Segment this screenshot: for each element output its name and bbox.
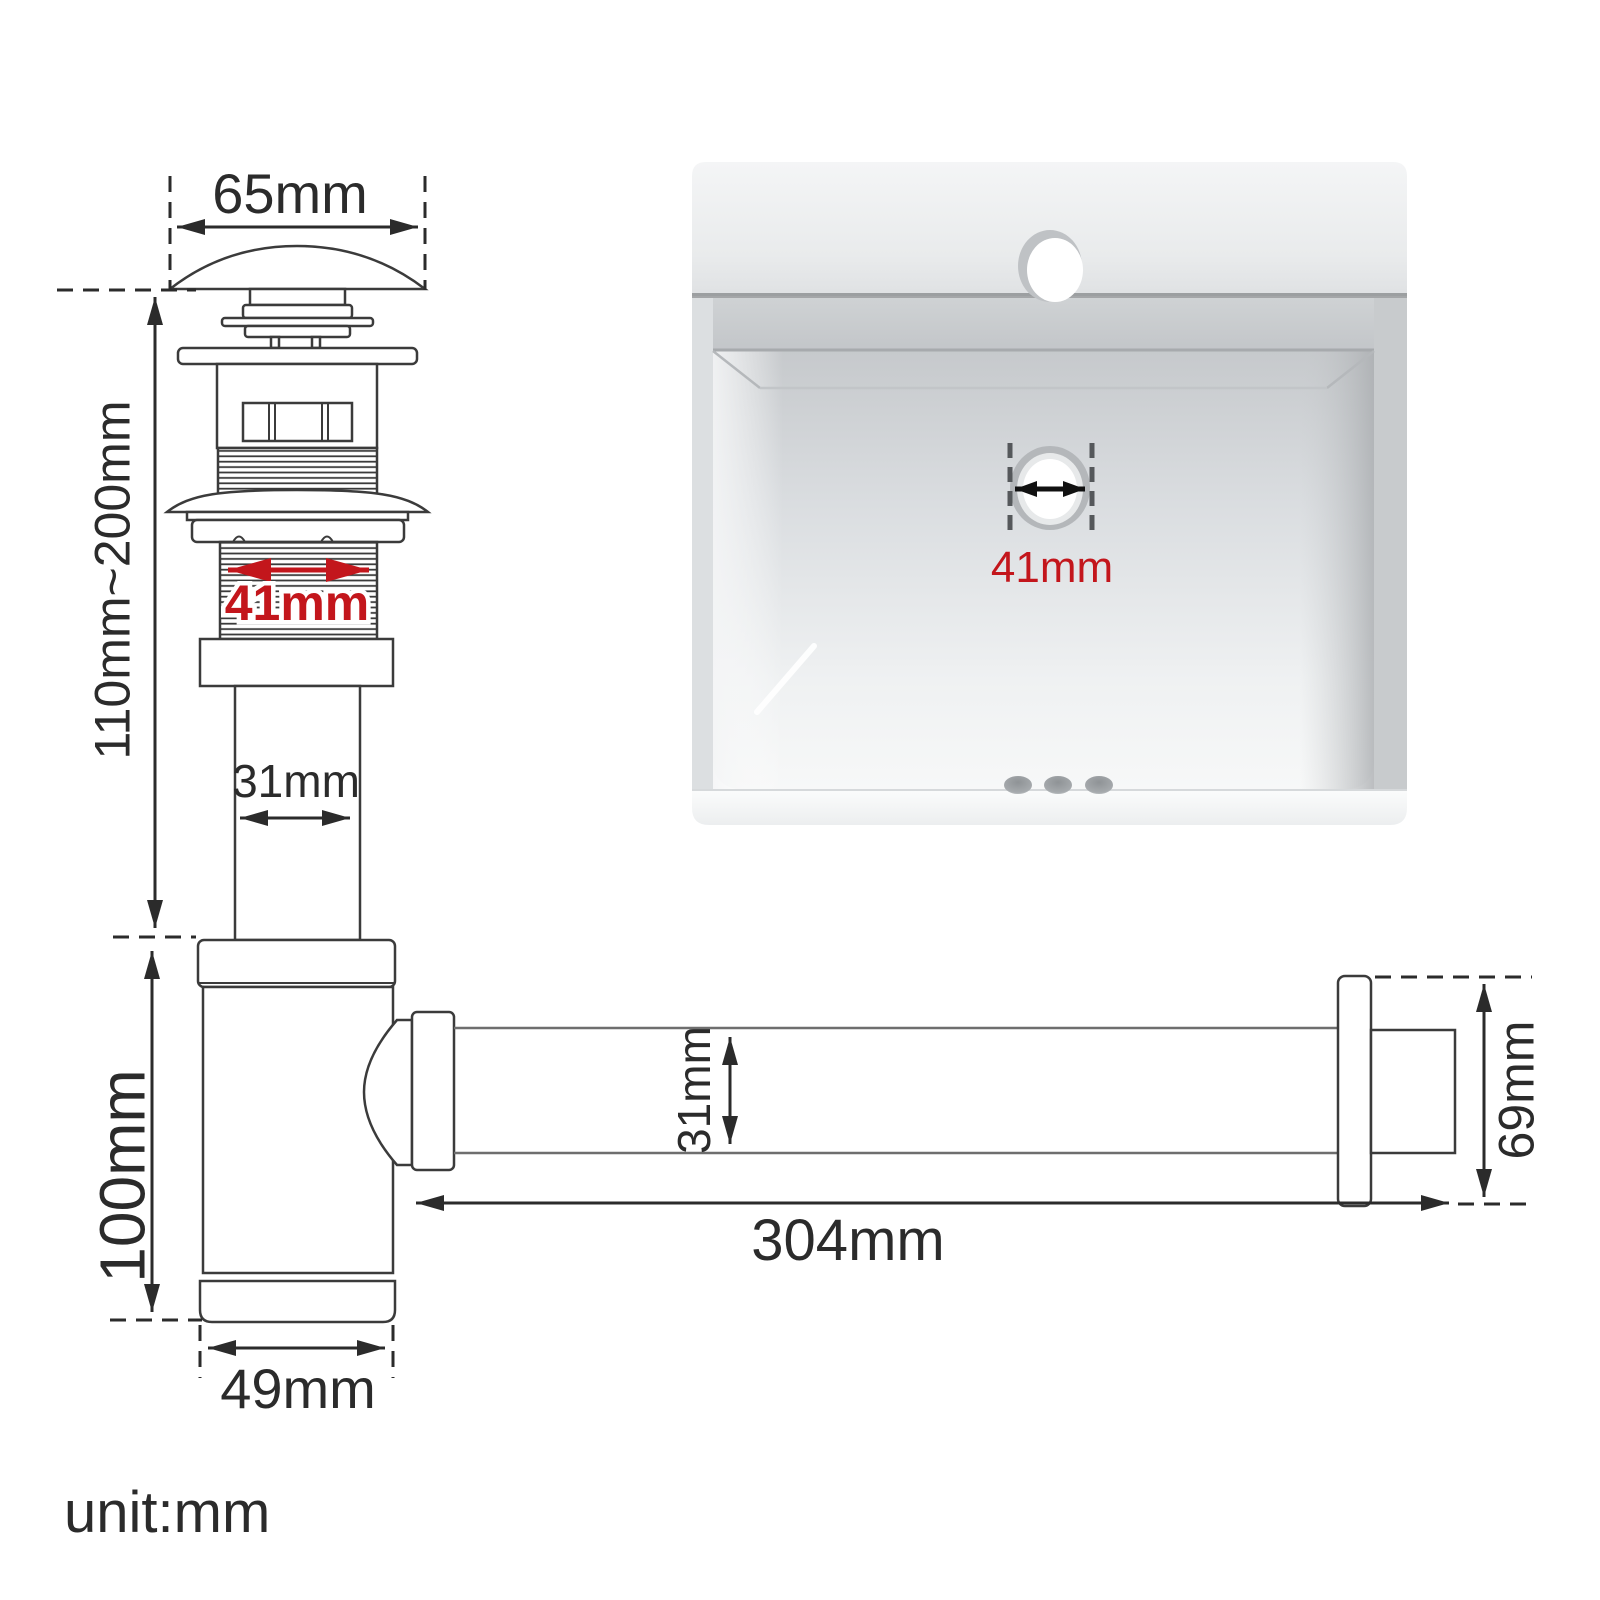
dim-pipe-length: 304mm [416,1203,1532,1273]
popup-disc-upper [243,305,352,318]
drain-top-flange [178,348,417,364]
overflow-hole-left [1004,776,1032,794]
drain-body-window [243,403,352,441]
unit-note: unit:mm [64,1480,270,1545]
sink-dim-label: 41mm [991,543,1113,592]
drain-locknut [192,520,404,542]
dim-thread-diameter: 41mm [225,570,370,631]
dim-65-label: 65mm [212,162,368,225]
outlet-pipe [454,976,1455,1206]
dim-31-pipe-label: 31mm [668,1026,720,1154]
wall-flange [1338,976,1371,1206]
drain-cap-dome [170,246,425,289]
sink-side-left [692,298,713,790]
diagram-canvas: 65mm 110mm~200mm 41mm 31mm 100mm 49mm 31… [0,0,1600,1600]
dim-drain-height: 110mm~200mm [57,290,196,937]
dim-pipe-diameter: 31mm [668,1026,730,1154]
dim-31-tail-label: 31mm [232,755,360,807]
trap-top-flange [198,940,395,987]
bottle-trap [198,940,454,1322]
drain-bottom-nut [200,639,393,686]
sink-front-rim [692,790,1407,825]
overflow-hole-right [1085,776,1113,794]
trap-body [203,987,393,1273]
dim-69-label: 69mm [1489,1021,1545,1160]
popup-disc-lower [245,326,350,337]
sink-basin-left-light [713,350,783,790]
faucet-hole [1027,238,1083,302]
sink-photo: 41mm [692,162,1407,825]
popup-pin-left [271,337,279,348]
outlet-collar-nut [412,1012,454,1170]
drain-tailpipe [235,686,360,940]
dim-41-red-label: 41mm [225,575,370,631]
dim-trap-diameter: 49mm [200,1325,393,1420]
dim-49-label: 49mm [220,1357,376,1420]
dim-trap-height: 100mm [86,951,202,1320]
dim-100-label: 100mm [86,1069,158,1282]
trap-bottom-cap [200,1281,395,1322]
wall-end-pipe [1371,1030,1455,1153]
diagram-page: 65mm 110mm~200mm 41mm 31mm 100mm 49mm 31… [0,0,1600,1600]
drain-saucer-flange [167,490,428,512]
drain-cap-stem [250,289,345,305]
sink-basin-right-shade [1300,350,1374,790]
sink-bevel-band [692,298,1407,350]
dim-110-label: 110mm~200mm [85,401,141,760]
overflow-hole-middle [1044,776,1072,794]
popup-pin-right [312,337,320,348]
dim-304-label: 304mm [751,1208,944,1273]
drain-thread-upper [218,448,377,494]
sink-side-right [1374,298,1407,790]
